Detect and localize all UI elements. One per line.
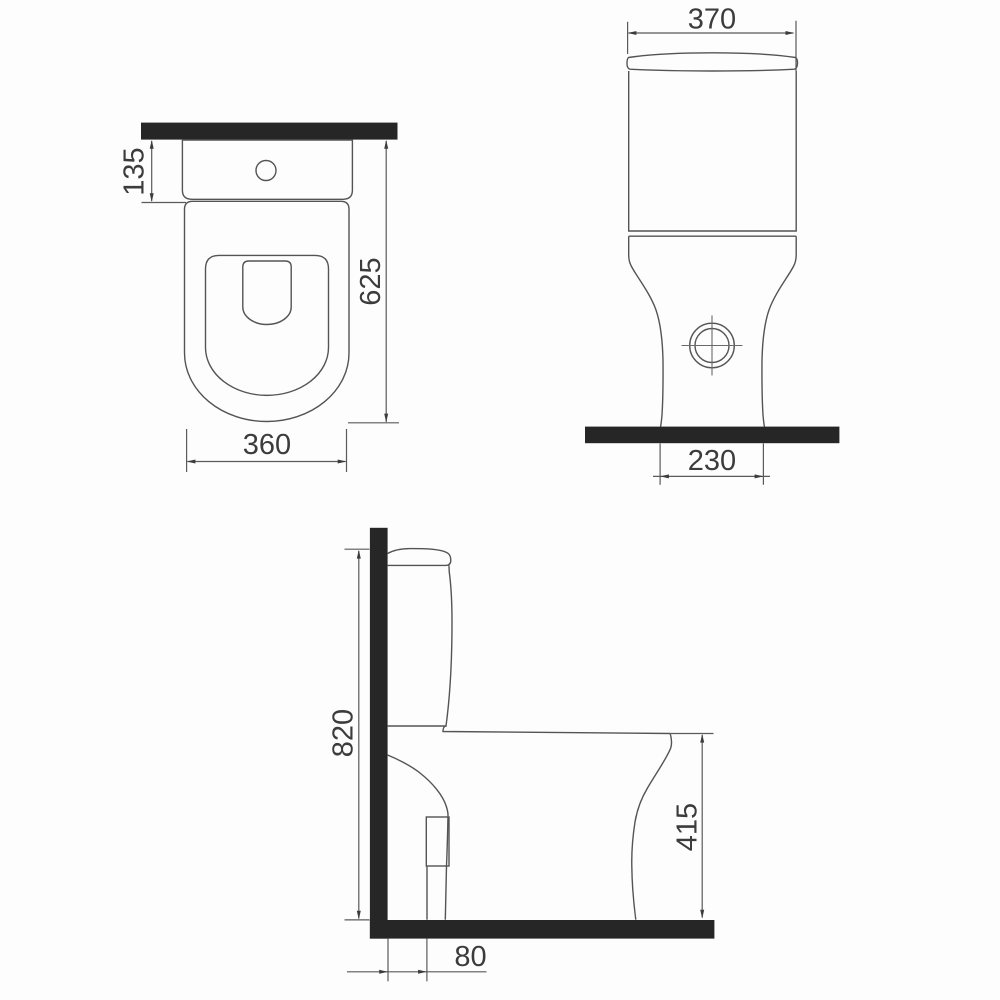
svg-text:230: 230 [688, 445, 736, 477]
svg-text:625: 625 [355, 257, 387, 305]
svg-text:370: 370 [688, 4, 736, 36]
svg-text:820: 820 [328, 709, 360, 757]
svg-text:415: 415 [672, 803, 704, 851]
svg-text:360: 360 [243, 429, 291, 461]
svg-text:135: 135 [119, 147, 151, 195]
svg-text:80: 80 [454, 941, 486, 973]
